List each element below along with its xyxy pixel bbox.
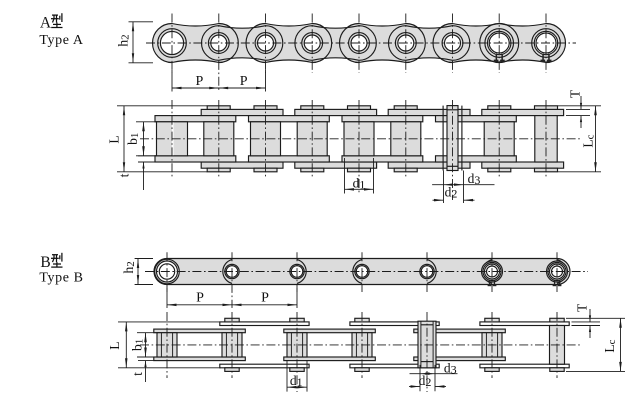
svg-text:T: T — [568, 89, 583, 98]
svg-text:d1: d1 — [353, 176, 366, 192]
svg-text:d3: d3 — [468, 171, 481, 187]
svg-text:B: B — [40, 254, 50, 271]
svg-text:Type A: Type A — [39, 33, 84, 48]
svg-text:L: L — [107, 341, 122, 349]
svg-text:d2: d2 — [419, 373, 432, 389]
svg-text:t: t — [130, 372, 145, 376]
svg-text:P: P — [196, 74, 204, 89]
svg-text:T: T — [574, 303, 589, 312]
svg-text:A: A — [40, 14, 52, 31]
svg-text:t: t — [117, 173, 132, 177]
svg-text:d2: d2 — [445, 185, 458, 201]
svg-text:P: P — [261, 290, 269, 305]
svg-text:Type B: Type B — [39, 271, 83, 286]
svg-text:d3: d3 — [444, 361, 457, 377]
svg-text:P: P — [240, 74, 248, 89]
svg-text:L: L — [106, 135, 121, 143]
svg-text:d1: d1 — [290, 373, 303, 389]
svg-text:P: P — [196, 290, 204, 305]
